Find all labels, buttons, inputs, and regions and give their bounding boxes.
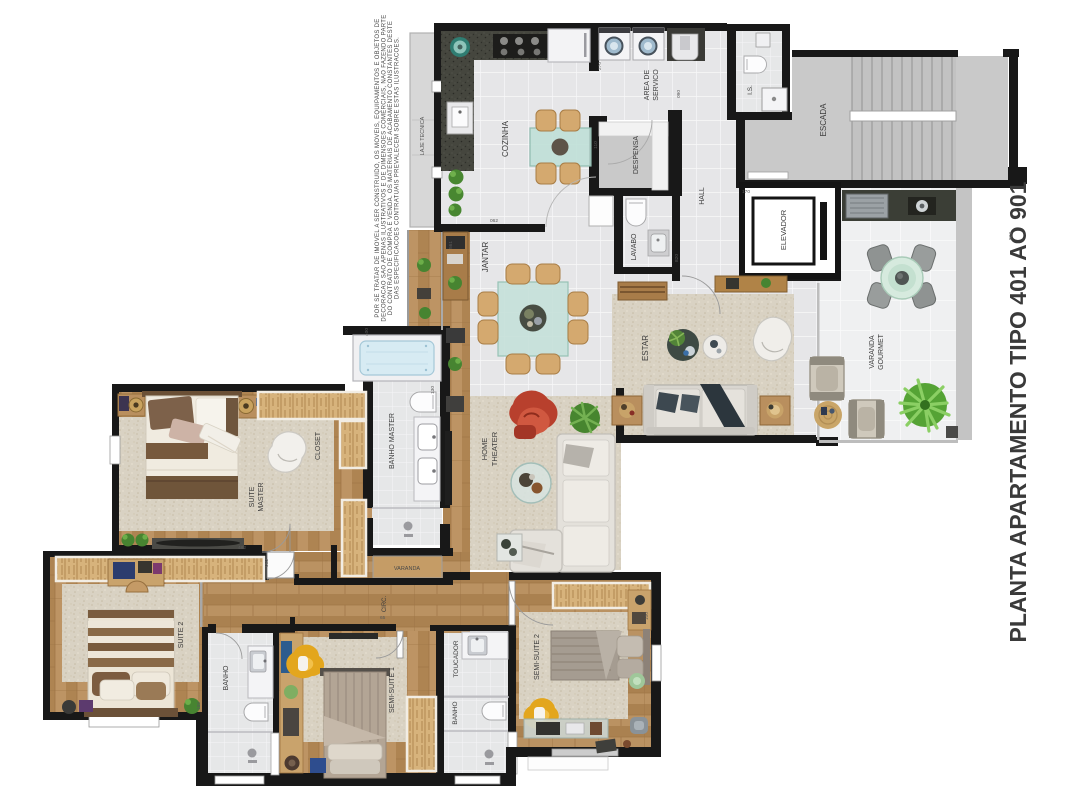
svg-text:GOURMET: GOURMET — [878, 333, 885, 370]
svg-text:TOUCADOR: TOUCADOR — [453, 640, 460, 677]
svg-text:400: 400 — [364, 328, 370, 336]
svg-text:HOME: HOME — [480, 438, 489, 461]
svg-text:AREA DE: AREA DE — [644, 70, 651, 101]
svg-text:PLANTA APARTAMENTO TIPO 401 AO: PLANTA APARTAMENTO TIPO 401 AO 901 — [1005, 181, 1031, 642]
svg-text:130: 130 — [430, 386, 436, 394]
svg-text:DESPENSA: DESPENSA — [633, 136, 640, 174]
svg-text:SUITE 2: SUITE 2 — [178, 622, 185, 649]
svg-text:561: 561 — [448, 241, 454, 249]
svg-text:170: 170 — [742, 189, 750, 195]
svg-text:CIRC.: CIRC. — [382, 596, 388, 613]
svg-text:962: 962 — [264, 559, 270, 567]
svg-text:BANHO: BANHO — [452, 701, 459, 724]
svg-text:DO CONTRATO DE COMPRA E VENDA.: DO CONTRATO DE COMPRA E VENDA. OS MATERI… — [388, 21, 394, 315]
svg-text:270: 270 — [597, 62, 603, 70]
svg-text:SUITE: SUITE — [249, 486, 256, 507]
svg-text:DAS ESPECIFICACOES CONTRATUAIS: DAS ESPECIFICACOES CONTRATUAIS PREVALECE… — [395, 37, 401, 299]
svg-text:482: 482 — [238, 545, 246, 551]
svg-text:POR SE TRATAR DE IMOVEL A SER: POR SE TRATAR DE IMOVEL A SER CONSTRUIDO… — [375, 18, 381, 317]
svg-text:SEMI-SUITE 2: SEMI-SUITE 2 — [534, 634, 541, 680]
svg-text:I.S.: I.S. — [747, 85, 754, 95]
svg-text:THEATER: THEATER — [490, 431, 499, 466]
svg-text:822: 822 — [1008, 232, 1014, 240]
svg-text:COZINHA: COZINHA — [501, 120, 510, 157]
svg-text:ESCADA: ESCADA — [819, 103, 828, 137]
svg-text:100: 100 — [644, 612, 650, 620]
svg-text:VARANDA: VARANDA — [869, 335, 876, 369]
svg-text:VARANDA: VARANDA — [394, 566, 421, 572]
svg-text:062: 062 — [490, 218, 498, 224]
svg-text:SERVICO: SERVICO — [653, 69, 660, 101]
svg-text:65: 65 — [380, 615, 386, 621]
svg-text:JANTAR: JANTAR — [481, 242, 490, 273]
svg-text:090: 090 — [676, 90, 682, 98]
svg-text:LAVABO: LAVABO — [631, 233, 638, 261]
svg-text:820: 820 — [674, 254, 680, 262]
svg-text:BANHO MASTER: BANHO MASTER — [389, 413, 396, 469]
svg-text:SEMI-SUITE 1: SEMI-SUITE 1 — [389, 667, 396, 713]
svg-text:MASTER: MASTER — [258, 482, 265, 511]
svg-text:DECORACAO SAO APENAS ILUSTRATI: DECORACAO SAO APENAS ILUSTRATIVOS E DE D… — [382, 14, 388, 321]
svg-text:ELEVADOR: ELEVADOR — [779, 209, 788, 250]
svg-text:ESTAR: ESTAR — [641, 335, 650, 361]
svg-text:HALL: HALL — [699, 187, 706, 205]
svg-text:CLOSET: CLOSET — [315, 431, 322, 460]
svg-text:110: 110 — [593, 141, 599, 149]
svg-text:196: 196 — [196, 702, 202, 710]
svg-text:BANHO: BANHO — [223, 665, 230, 690]
svg-text:LAJE TECNICA: LAJE TECNICA — [420, 116, 426, 155]
